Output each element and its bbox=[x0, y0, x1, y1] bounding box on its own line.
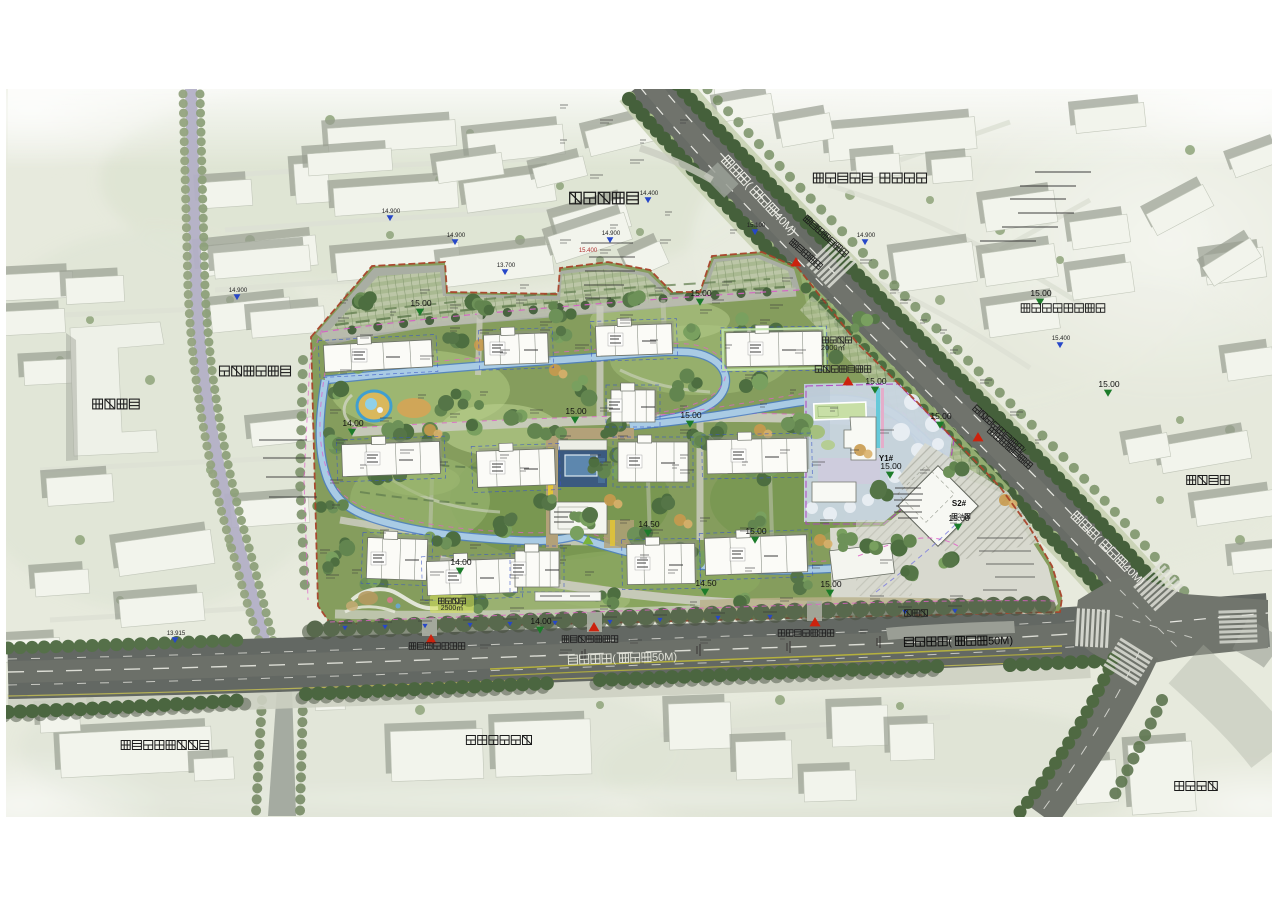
svg-text:14.50: 14.50 bbox=[695, 578, 717, 588]
svg-text:15.00: 15.00 bbox=[820, 579, 842, 589]
svg-text:13.915: 13.915 bbox=[167, 631, 186, 637]
svg-text:13.700: 13.700 bbox=[497, 263, 516, 269]
svg-text:14.400: 14.400 bbox=[640, 191, 659, 197]
svg-text:15.00: 15.00 bbox=[930, 411, 952, 421]
svg-text:15.00: 15.00 bbox=[690, 288, 712, 298]
svg-text:15.00: 15.00 bbox=[565, 406, 587, 416]
svg-text:15.400: 15.400 bbox=[1052, 336, 1071, 342]
svg-text:15.00: 15.00 bbox=[865, 376, 887, 386]
svg-text:50M): 50M) bbox=[652, 651, 677, 664]
svg-text:21: 21 bbox=[958, 514, 965, 520]
svg-text:14.00: 14.00 bbox=[530, 616, 552, 626]
svg-text:Y1#: Y1# bbox=[879, 454, 894, 463]
svg-text:14.900: 14.900 bbox=[857, 233, 876, 239]
svg-text:14.900: 14.900 bbox=[602, 231, 621, 237]
svg-text:14.900: 14.900 bbox=[447, 233, 466, 239]
svg-text:14.900: 14.900 bbox=[382, 209, 401, 215]
svg-text:S2#: S2# bbox=[952, 499, 967, 508]
svg-text:2000㎡: 2000㎡ bbox=[821, 343, 846, 352]
svg-text:15.00: 15.00 bbox=[1030, 288, 1052, 298]
svg-text:14.50: 14.50 bbox=[638, 519, 660, 529]
svg-text:15.00: 15.00 bbox=[410, 298, 432, 308]
svg-text:15.00: 15.00 bbox=[680, 410, 702, 420]
svg-text:15.400: 15.400 bbox=[579, 248, 598, 254]
svg-text:(: ( bbox=[948, 636, 952, 648]
svg-text:14.00: 14.00 bbox=[450, 557, 472, 567]
svg-text:2500㎡: 2500㎡ bbox=[441, 604, 464, 612]
svg-text:15.00: 15.00 bbox=[1098, 379, 1120, 389]
svg-text:50M): 50M) bbox=[988, 635, 1013, 647]
svg-text:14.00: 14.00 bbox=[342, 418, 364, 428]
svg-text:15.100: 15.100 bbox=[747, 223, 766, 229]
svg-text:14.900: 14.900 bbox=[229, 288, 248, 294]
